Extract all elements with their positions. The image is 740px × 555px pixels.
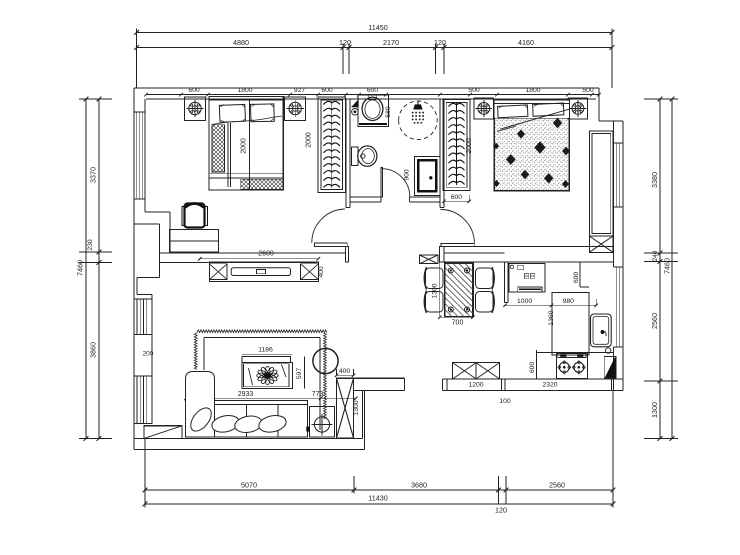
svg-text:600: 600 — [529, 362, 536, 374]
svg-text:3680: 3680 — [411, 480, 427, 489]
svg-text:600: 600 — [451, 194, 463, 201]
svg-text:240: 240 — [652, 250, 659, 261]
svg-text:400: 400 — [318, 266, 325, 278]
svg-text:7460: 7460 — [76, 260, 85, 276]
svg-text:2933: 2933 — [238, 391, 254, 398]
svg-text:120: 120 — [339, 38, 351, 47]
svg-text:1300: 1300 — [353, 400, 360, 415]
svg-text:1186: 1186 — [258, 347, 273, 354]
svg-text:200: 200 — [143, 351, 154, 358]
svg-text:2170: 2170 — [383, 38, 399, 47]
svg-text:773: 773 — [312, 391, 324, 398]
svg-text:1300: 1300 — [650, 402, 659, 418]
svg-text:400: 400 — [339, 368, 351, 375]
svg-text:2000: 2000 — [241, 138, 248, 154]
svg-text:2000: 2000 — [306, 132, 313, 148]
svg-text:1300: 1300 — [432, 283, 439, 298]
svg-text:2000: 2000 — [466, 138, 473, 154]
svg-text:230: 230 — [87, 239, 94, 251]
svg-text:1200: 1200 — [468, 382, 483, 389]
svg-text:700: 700 — [452, 320, 464, 327]
svg-text:120: 120 — [495, 506, 507, 515]
svg-text:11430: 11430 — [368, 494, 387, 503]
svg-text:120: 120 — [434, 38, 446, 47]
svg-text:3370: 3370 — [89, 167, 98, 183]
svg-text:4880: 4880 — [233, 38, 249, 47]
svg-text:980: 980 — [563, 298, 575, 305]
svg-text:3860: 3860 — [89, 342, 98, 358]
svg-text:2600: 2600 — [258, 250, 274, 257]
svg-text:4160: 4160 — [518, 38, 534, 47]
svg-text:900: 900 — [404, 169, 411, 181]
svg-text:2560: 2560 — [549, 480, 565, 489]
svg-text:11450: 11450 — [368, 23, 387, 32]
svg-text:1000: 1000 — [517, 298, 532, 305]
svg-text:600: 600 — [573, 272, 580, 284]
svg-text:2560: 2560 — [650, 313, 659, 329]
svg-text:100: 100 — [499, 398, 511, 405]
svg-text:3380: 3380 — [650, 172, 659, 188]
svg-text:7460: 7460 — [663, 258, 672, 274]
svg-text:1360: 1360 — [548, 310, 555, 325]
svg-text:597: 597 — [296, 368, 303, 380]
svg-text:5070: 5070 — [241, 480, 257, 489]
svg-text:2320: 2320 — [542, 382, 557, 389]
svg-text:580: 580 — [385, 106, 392, 118]
